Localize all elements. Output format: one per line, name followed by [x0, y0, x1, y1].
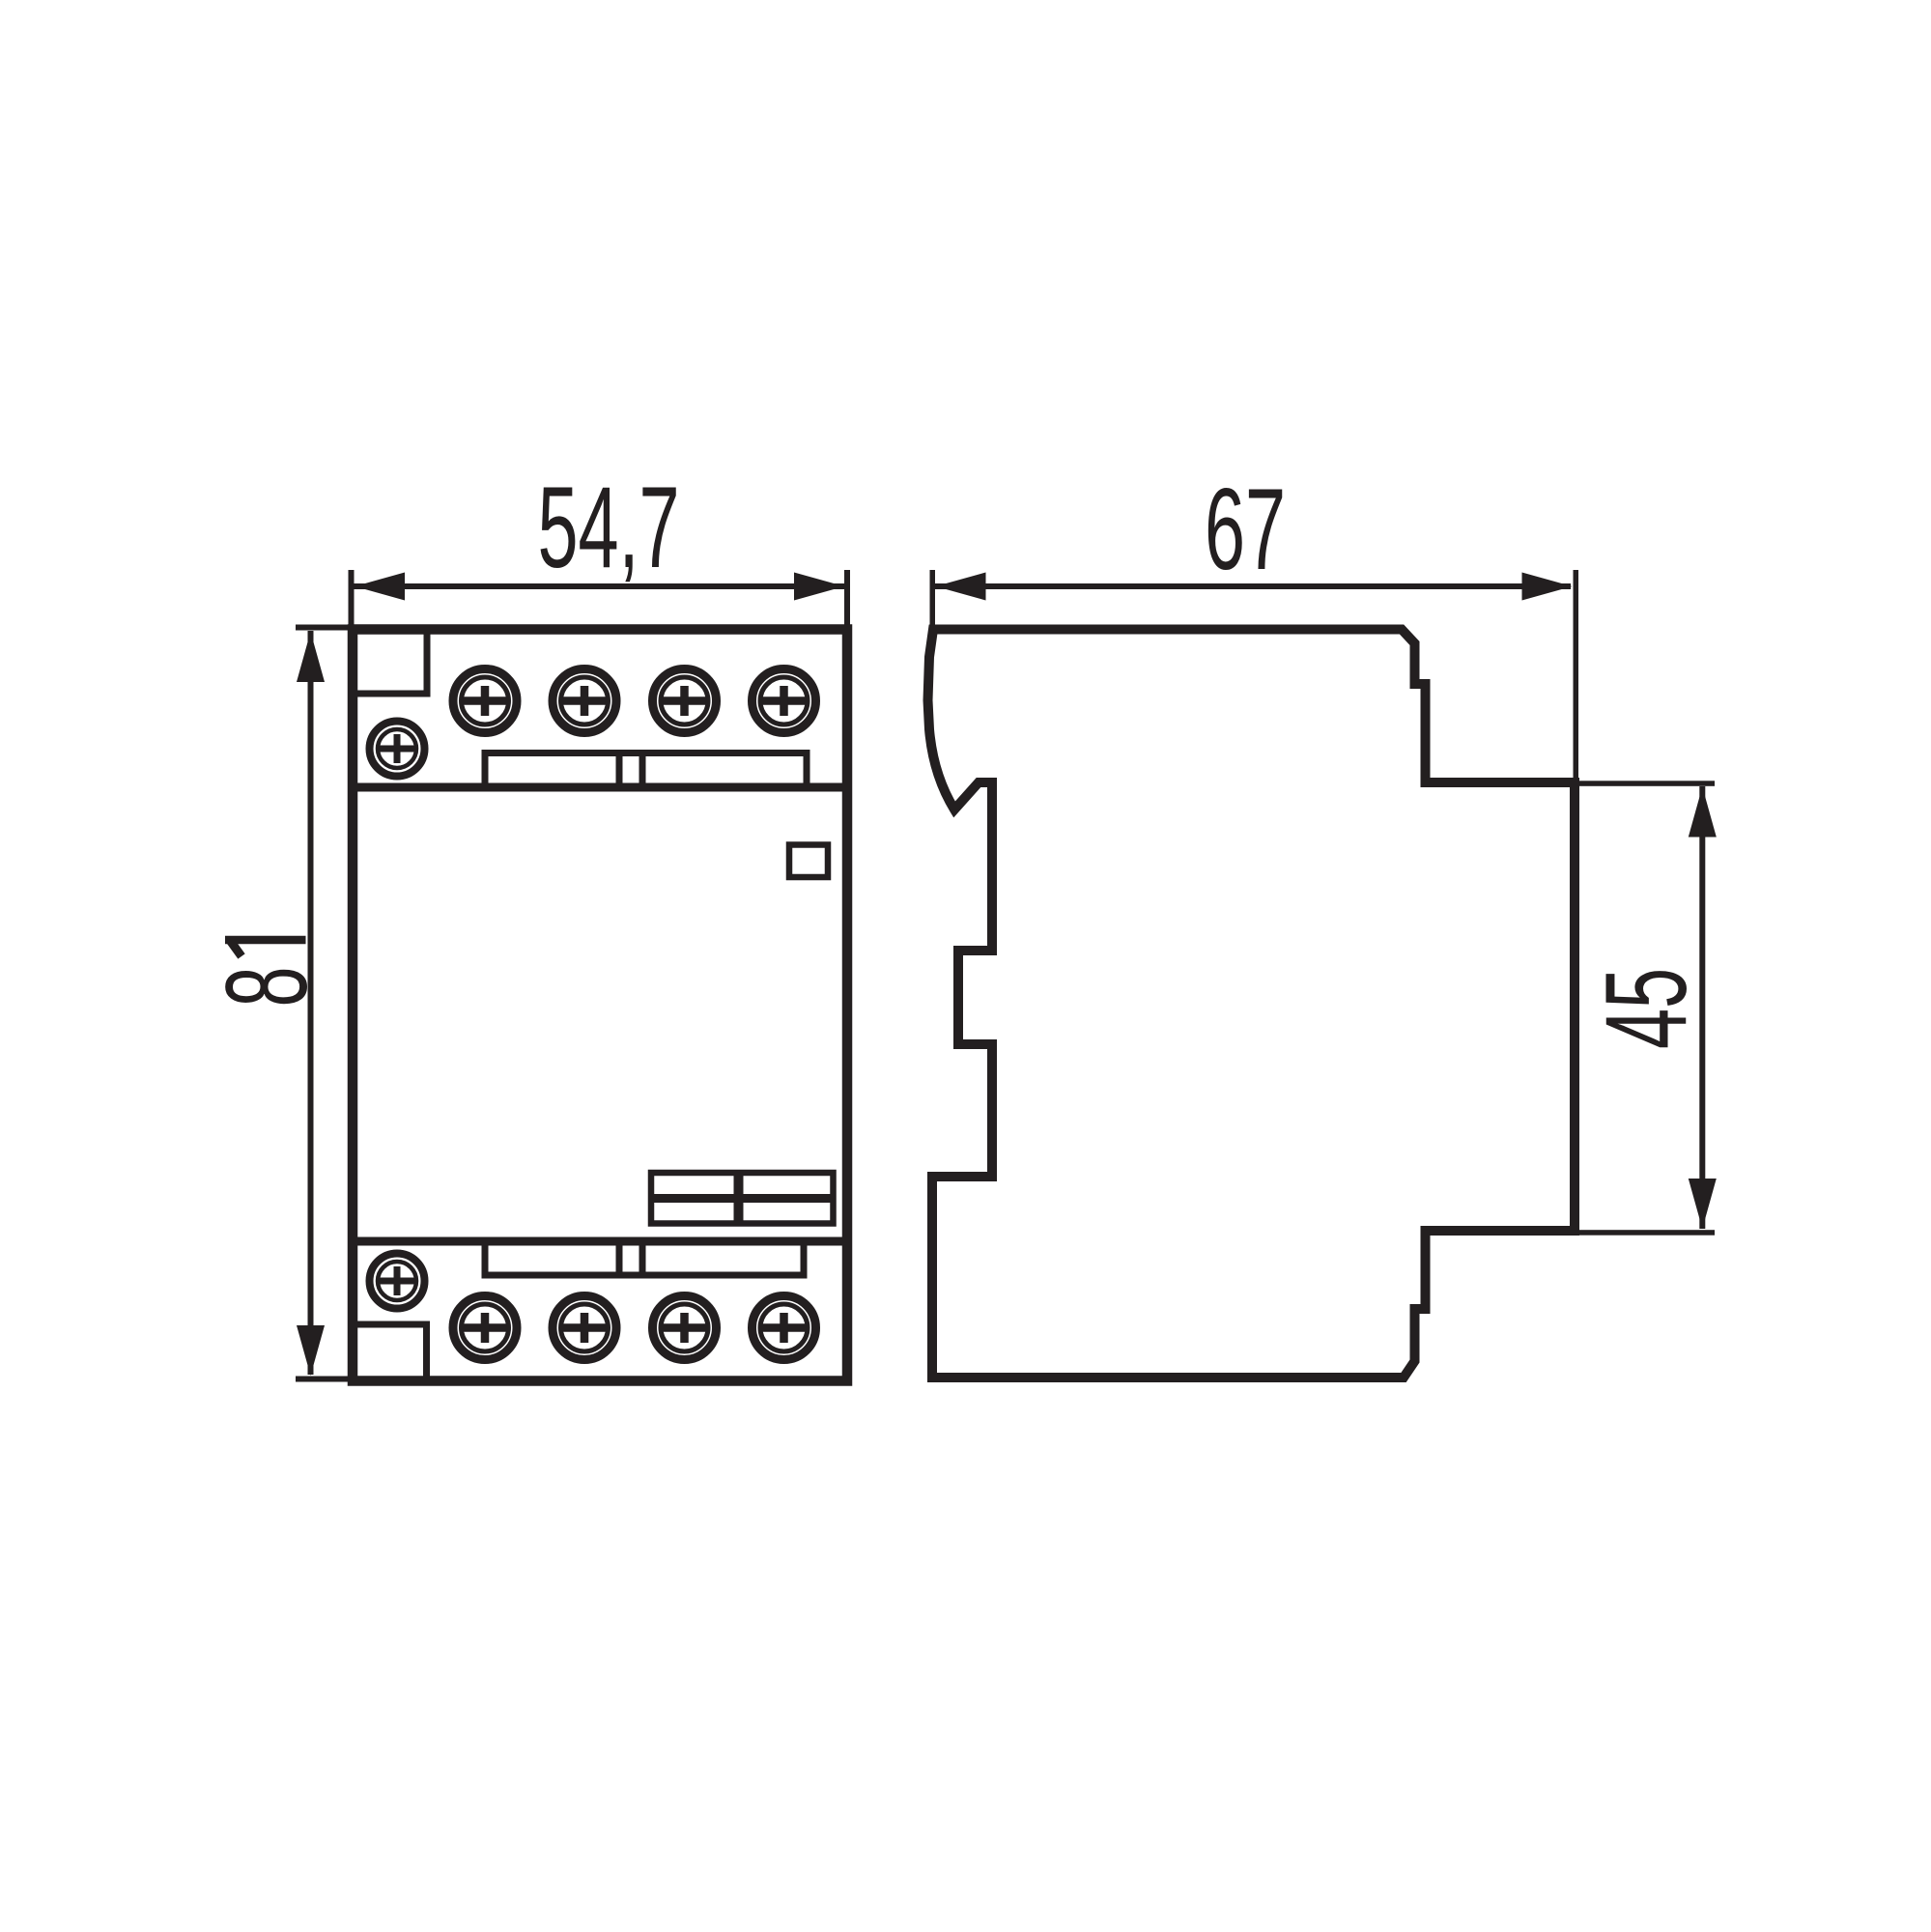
svg-text:67: 67: [1205, 465, 1286, 594]
svg-text:45: 45: [1581, 968, 1711, 1049]
svg-text:54,7: 54,7: [537, 463, 679, 592]
